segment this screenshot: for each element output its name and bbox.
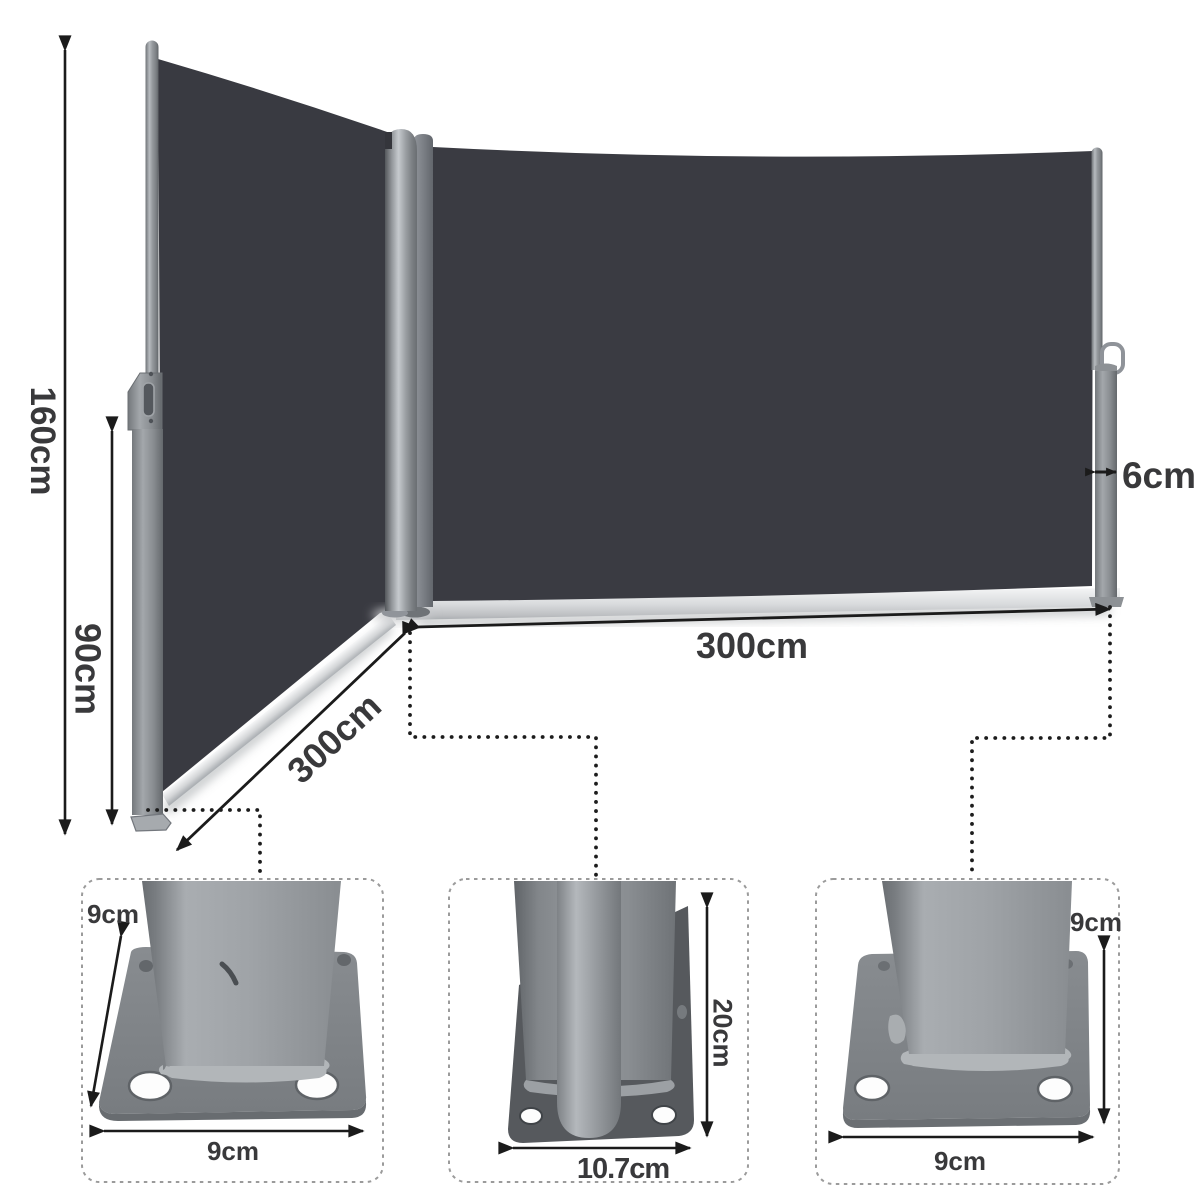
svg-text:20cm: 20cm [708, 998, 738, 1067]
svg-text:9cm: 9cm [207, 1136, 259, 1166]
svg-text:10.7cm: 10.7cm [577, 1153, 669, 1185]
svg-text:9cm: 9cm [87, 899, 139, 929]
svg-text:300cm: 300cm [696, 625, 808, 666]
svg-text:9cm: 9cm [1070, 907, 1122, 937]
svg-text:9cm: 9cm [934, 1146, 986, 1176]
svg-text:160cm: 160cm [23, 387, 62, 496]
svg-text:90cm: 90cm [67, 623, 108, 715]
svg-text:6cm: 6cm [1122, 455, 1196, 496]
